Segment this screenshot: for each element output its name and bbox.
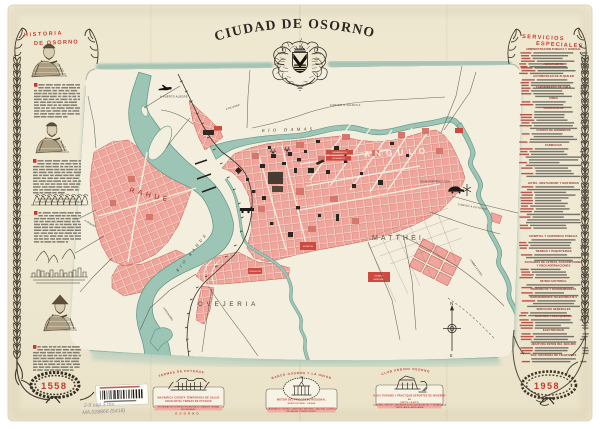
svg-text:OVEJERIA: OVEJERIA: [198, 301, 259, 308]
svg-text:MUSEO HISTORIAL: MUSEO HISTORIAL: [540, 279, 567, 283]
svg-text:TIENDAS Y PAQUETERIAS: TIENDAS Y PAQUETERIAS: [535, 249, 571, 253]
svg-text:A PUERTO ALEGRE: A PUERTO ALEGRE: [160, 96, 188, 99]
svg-text:DE DESCANSO: DE DESCANSO: [181, 408, 196, 411]
svg-text:CARABINEROS DE CHILE: CARABINEROS DE CHILE: [536, 85, 571, 89]
svg-text:CONSULADOS: CONSULADOS: [543, 106, 563, 110]
svg-text:FARMACIAS: FARMACIAS: [545, 143, 562, 147]
svg-text:HOSPITAL Y ASISTENCIA PUBLICA: HOSPITAL Y ASISTENCIA PUBLICA: [529, 234, 577, 238]
svg-text:CARTILLANCA - ANTILLANCA: CARTILLANCA - ANTILLANCA: [396, 406, 424, 409]
svg-text:HOTEL, RESTAURANT Y HOSTERIAS: HOTEL, RESTAURANT Y HOSTERIAS: [528, 181, 579, 185]
svg-text:SASTRES Y PELUQUEROS: SASTRES Y PELUQUEROS: [535, 314, 572, 318]
svg-text:MAGNIFICA CUENTA TEMPORADA DE: MAGNIFICA CUENTA TEMPORADA DE SALUD: [157, 397, 219, 400]
svg-text:AEROPUERTO: AEROPUERTO: [544, 62, 564, 66]
svg-text:CAMINO A VALDIVIA: CAMINO A VALDIVIA: [330, 104, 361, 107]
svg-text:PERIODICOS Y RADIOEMISORAS: PERIODICOS Y RADIOEMISORAS: [531, 287, 577, 291]
svg-text:CARABINEROS: CARABINEROS: [332, 151, 347, 154]
svg-text:REGIMIENTO: REGIMIENTO: [332, 158, 345, 160]
svg-text:AGUADA REPRESION DAM: AGUADA REPRESION DAM: [420, 181, 450, 184]
svg-text:ADMINISTRACION PUBLICA Y JUDIC: ADMINISTRACION PUBLICA Y JUDICIAL: [526, 47, 581, 51]
svg-text:MATTHEI: MATTHEI: [372, 235, 424, 242]
svg-text:Y ENCUADERNACIONES: Y ENCUADERNACIONES: [537, 264, 571, 268]
svg-text:CUERPO DE BOMBEROS: CUERPO DE BOMBEROS: [536, 128, 570, 132]
svg-text:HAGA TURISMO Y PRACTIQUE DEPOR: HAGA TURISMO Y PRACTIQUE DEPORTES DE INV…: [373, 395, 445, 398]
svg-text:N: N: [450, 301, 453, 306]
svg-text:OSORNO: OSORNO: [175, 412, 201, 416]
svg-text:JEFATURA RETEN DEL SEGURO: JEFATURA RETEN DEL SEGURO: [531, 342, 576, 346]
svg-text:AGRICULTURA - CASAS: AGRICULTURA - CASAS: [288, 402, 316, 405]
svg-text:ESTACION: ESTACION: [303, 245, 314, 248]
svg-text:JUZGADOS DE LETRAS, SUSCRIPCIO: JUZGADOS DE LETRAS, SUSCRIPCIONES: [525, 260, 583, 264]
svg-text:POBLACION: POBLACION: [249, 270, 261, 273]
svg-text:ELECTRICIDAD: ELECTRICIDAD: [543, 328, 564, 332]
svg-text:SERVICIOS GENERALES: SERVICIOS GENERALES: [537, 307, 571, 311]
svg-text:CINES: CINES: [549, 96, 558, 100]
svg-text:MOTOR DEL PROGRESO REGIONAL: MOTOR DEL PROGRESO REGIONAL: [277, 399, 327, 402]
svg-text:RIO NEGRO Y PUERTO MONTT: RIO NEGRO Y PUERTO MONTT: [287, 411, 318, 413]
svg-text:S: S: [450, 353, 453, 358]
svg-text:AUTOMOVILES DE ALQUILER: AUTOMOVILES DE ALQUILER: [533, 74, 574, 78]
svg-text:GRAN HOTEL TERMAS DE PUYEHUE: GRAN HOTEL TERMAS DE PUYEHUE: [165, 400, 212, 403]
svg-text:RADIOEMISORA TELEFONICA N.4: RADIOEMISORA TELEFONICA N.4: [530, 295, 577, 299]
svg-text:1558: 1558: [41, 381, 67, 392]
svg-text:1958: 1958: [534, 381, 560, 391]
svg-text:SOC. NACIONAL DE TELEFONOS: SOC. NACIONAL DE TELEFONOS: [531, 353, 577, 357]
